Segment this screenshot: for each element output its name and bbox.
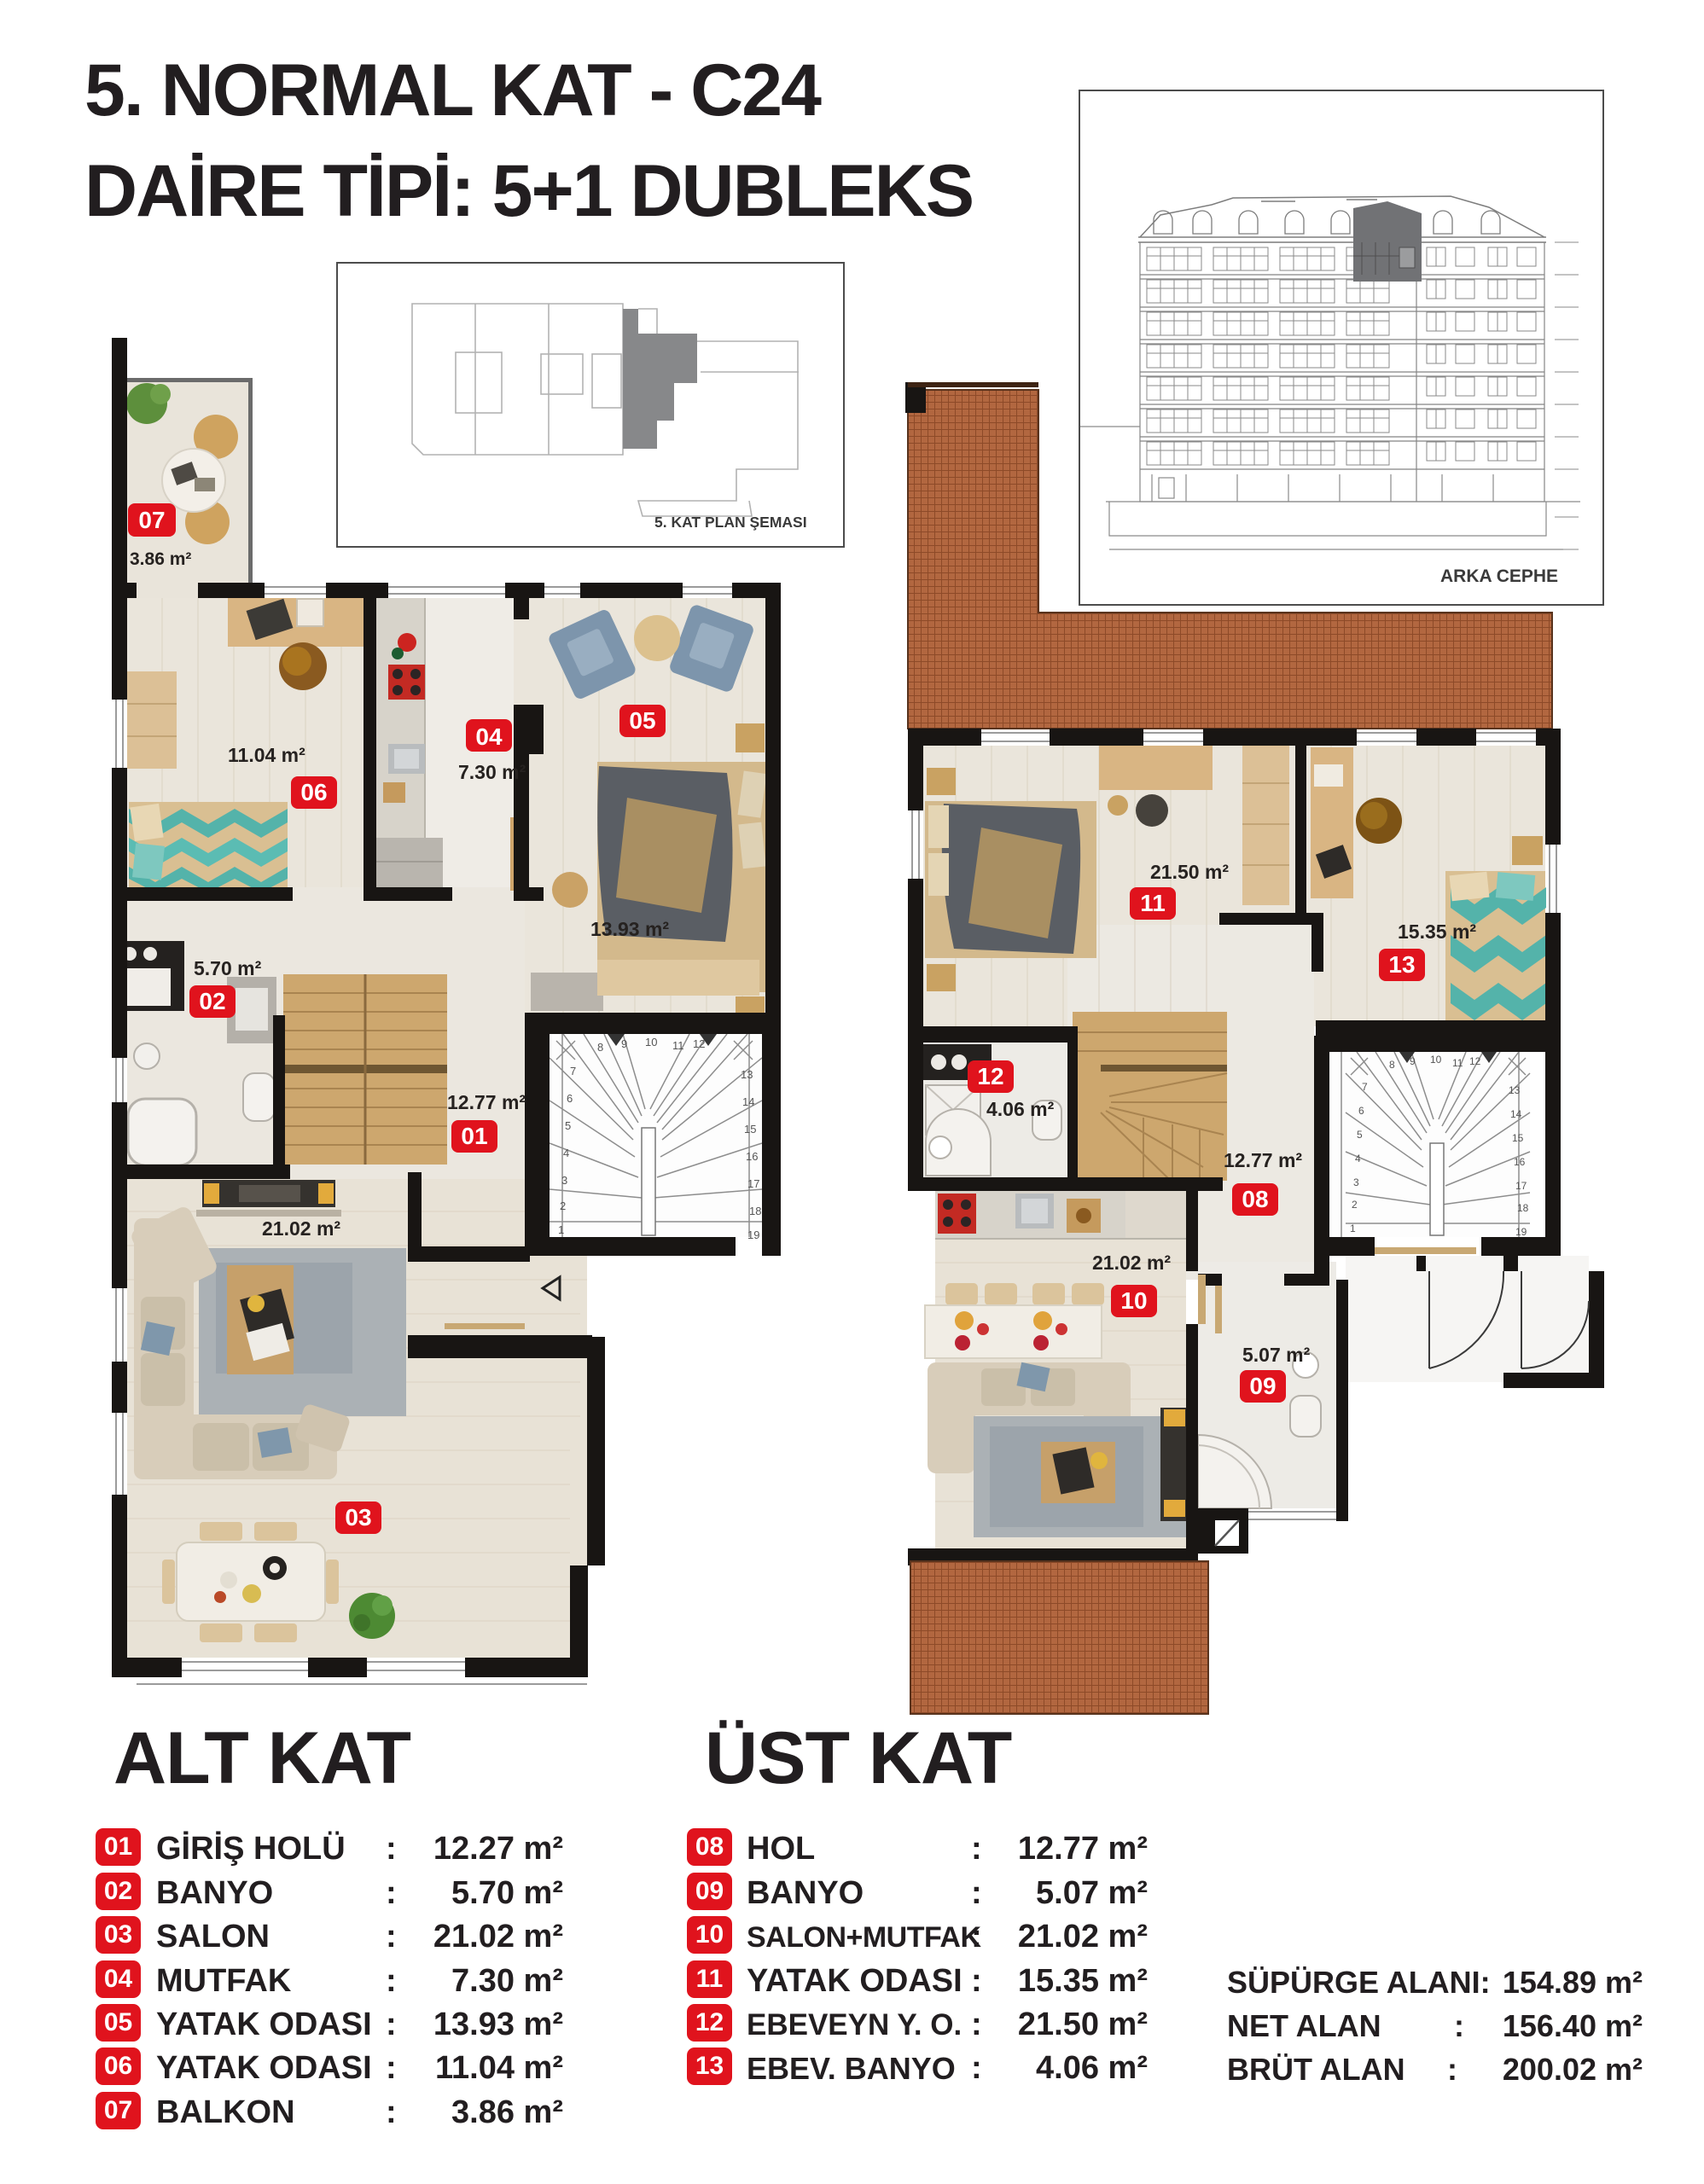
svg-text:13: 13 bbox=[741, 1068, 753, 1081]
svg-text:15: 15 bbox=[744, 1123, 756, 1136]
svg-text:5: 5 bbox=[1357, 1129, 1363, 1141]
svg-text:3: 3 bbox=[1353, 1176, 1359, 1188]
svg-text:3: 3 bbox=[561, 1174, 567, 1187]
svg-text:16: 16 bbox=[746, 1150, 758, 1163]
svg-text:4: 4 bbox=[563, 1147, 569, 1159]
svg-text:02: 02 bbox=[199, 988, 225, 1014]
svg-text:10: 10 bbox=[1120, 1287, 1147, 1314]
svg-text:1: 1 bbox=[558, 1223, 564, 1236]
svg-text:11: 11 bbox=[1140, 890, 1166, 916]
svg-text:4: 4 bbox=[1355, 1153, 1361, 1165]
svg-text:01: 01 bbox=[461, 1123, 487, 1149]
svg-text:17: 17 bbox=[1515, 1180, 1527, 1192]
svg-text:04: 04 bbox=[475, 723, 503, 750]
svg-text:7: 7 bbox=[570, 1065, 576, 1077]
svg-text:12: 12 bbox=[977, 1063, 1003, 1089]
svg-text:18: 18 bbox=[749, 1205, 761, 1217]
svg-text:21.02 m²: 21.02 m² bbox=[1092, 1252, 1171, 1274]
svg-text:11.04 m²: 11.04 m² bbox=[228, 744, 305, 766]
svg-text:13: 13 bbox=[1509, 1084, 1521, 1096]
svg-text:05: 05 bbox=[629, 707, 655, 734]
svg-text:8: 8 bbox=[597, 1041, 603, 1054]
svg-text:12.77 m²: 12.77 m² bbox=[447, 1091, 526, 1113]
svg-text:1: 1 bbox=[1350, 1223, 1356, 1234]
svg-text:18: 18 bbox=[1517, 1202, 1529, 1214]
svg-text:9: 9 bbox=[621, 1037, 627, 1050]
svg-text:19: 19 bbox=[1515, 1226, 1527, 1238]
svg-text:6: 6 bbox=[1358, 1105, 1364, 1117]
svg-text:17: 17 bbox=[747, 1177, 759, 1190]
svg-text:12: 12 bbox=[1469, 1055, 1481, 1067]
svg-text:9: 9 bbox=[1410, 1055, 1416, 1067]
svg-text:13.93 m²: 13.93 m² bbox=[590, 918, 669, 940]
svg-text:14: 14 bbox=[742, 1095, 754, 1108]
svg-text:14: 14 bbox=[1510, 1108, 1522, 1120]
svg-text:2: 2 bbox=[1352, 1199, 1358, 1211]
svg-text:3.86 m²: 3.86 m² bbox=[130, 549, 191, 569]
svg-text:08: 08 bbox=[1242, 1186, 1268, 1212]
svg-text:10: 10 bbox=[645, 1036, 657, 1048]
svg-text:03: 03 bbox=[345, 1504, 371, 1531]
svg-text:09: 09 bbox=[1249, 1373, 1276, 1399]
svg-text:21.50 m²: 21.50 m² bbox=[1150, 861, 1229, 883]
svg-text:15: 15 bbox=[1512, 1132, 1524, 1144]
svg-text:8: 8 bbox=[1389, 1059, 1395, 1071]
svg-text:11: 11 bbox=[1452, 1057, 1463, 1069]
svg-text:11: 11 bbox=[672, 1039, 684, 1052]
svg-text:06: 06 bbox=[300, 779, 327, 805]
svg-text:12: 12 bbox=[693, 1037, 705, 1050]
svg-text:12.77 m²: 12.77 m² bbox=[1224, 1149, 1302, 1171]
svg-text:5.70 m²: 5.70 m² bbox=[194, 957, 262, 979]
svg-text:5.07 m²: 5.07 m² bbox=[1242, 1344, 1311, 1366]
svg-text:6: 6 bbox=[567, 1092, 573, 1105]
svg-text:7.30 m²: 7.30 m² bbox=[458, 761, 526, 783]
svg-text:7: 7 bbox=[1362, 1081, 1368, 1093]
svg-text:2: 2 bbox=[560, 1199, 566, 1212]
svg-text:5: 5 bbox=[565, 1119, 571, 1132]
svg-text:15.35 m²: 15.35 m² bbox=[1398, 921, 1476, 943]
svg-text:19: 19 bbox=[747, 1228, 759, 1241]
svg-text:07: 07 bbox=[138, 507, 165, 533]
svg-text:13: 13 bbox=[1388, 951, 1415, 978]
svg-text:16: 16 bbox=[1514, 1156, 1526, 1168]
svg-text:4.06 m²: 4.06 m² bbox=[986, 1098, 1055, 1120]
svg-text:21.02 m²: 21.02 m² bbox=[262, 1217, 340, 1240]
svg-text:10: 10 bbox=[1430, 1054, 1442, 1066]
